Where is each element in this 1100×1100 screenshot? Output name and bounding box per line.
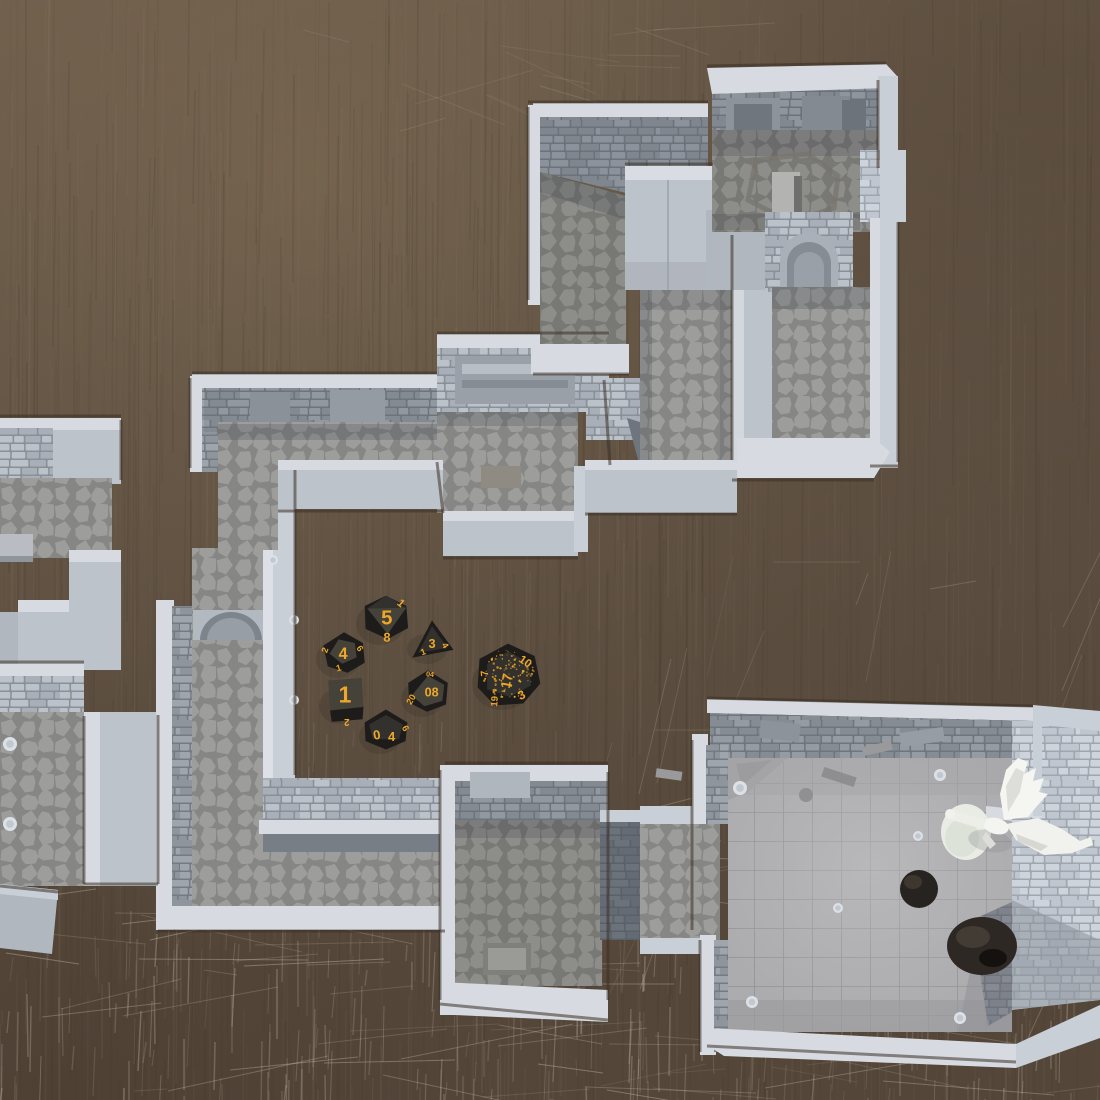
svg-text:5: 5: [381, 608, 392, 630]
svg-text:2: 2: [344, 716, 349, 727]
svg-text:1: 1: [339, 682, 352, 708]
svg-text:04: 04: [426, 669, 435, 679]
svg-text:8: 8: [383, 630, 391, 645]
svg-text:7: 7: [480, 670, 491, 677]
svg-text:3: 3: [428, 636, 435, 651]
svg-text:4: 4: [388, 729, 396, 744]
svg-text:4: 4: [339, 645, 348, 663]
svg-text:08: 08: [425, 685, 439, 699]
svg-text:17: 17: [498, 672, 515, 689]
svg-text:19: 19: [489, 696, 501, 707]
